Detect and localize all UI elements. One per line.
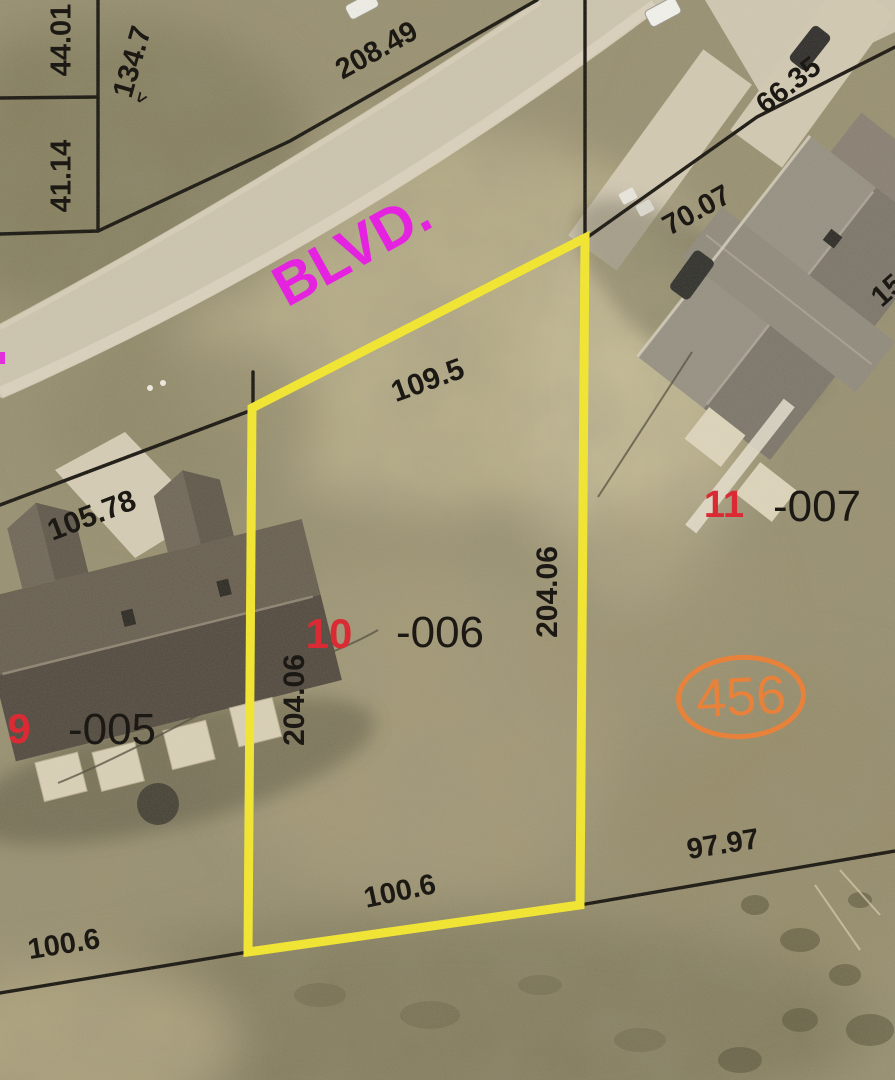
map-imagery xyxy=(0,0,895,1080)
photo-grain xyxy=(0,0,895,1080)
aerial-map-view[interactable]: 44.01134.7<41.14208.4966.3570.0715BLVD.1… xyxy=(0,0,895,1080)
